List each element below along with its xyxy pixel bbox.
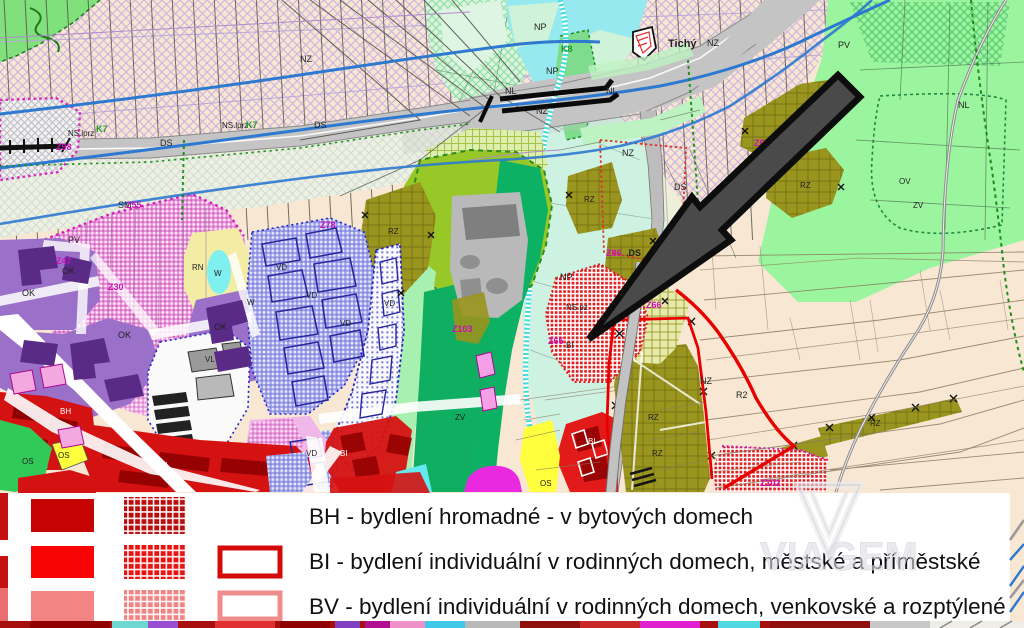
svg-text:DS: DS — [160, 138, 173, 148]
svg-text:RZ: RZ — [870, 419, 881, 428]
svg-text:NL: NL — [606, 86, 618, 96]
svg-text:VL: VL — [205, 355, 215, 364]
svg-text:OK: OK — [22, 288, 35, 298]
svg-text:ZV: ZV — [913, 201, 924, 210]
svg-text:BI: BI — [566, 341, 574, 350]
svg-text:W: W — [247, 298, 255, 307]
svg-text:NZ: NZ — [622, 148, 634, 158]
svg-text:R2: R2 — [736, 390, 748, 400]
svg-text:BI: BI — [588, 437, 596, 446]
svg-text:PV: PV — [68, 235, 80, 245]
svg-text:VD: VD — [276, 263, 287, 272]
svg-text:Z86: Z86 — [606, 248, 622, 258]
svg-text:VIAGEM: VIAGEM — [760, 535, 918, 579]
svg-text:Z65: Z65 — [548, 336, 564, 346]
svg-text:VD: VD — [306, 449, 317, 458]
svg-text:NP: NP — [534, 22, 547, 32]
svg-text:NS.lprz: NS.lprz — [68, 129, 94, 138]
svg-text:OS: OS — [22, 457, 34, 466]
svg-text:NS.pz: NS.pz — [566, 303, 588, 312]
svg-text:OK: OK — [118, 330, 131, 340]
svg-text:K7: K7 — [96, 124, 108, 134]
svg-text:NZ: NZ — [536, 106, 548, 116]
svg-text:BH: BH — [60, 407, 71, 416]
svg-text:BI: BI — [160, 461, 168, 470]
svg-text:RZ: RZ — [652, 449, 663, 458]
svg-text:NS.lprz: NS.lprz — [222, 121, 248, 130]
svg-text:NP: NP — [560, 272, 573, 282]
svg-text:Z98: Z98 — [56, 142, 72, 152]
svg-text:NL: NL — [958, 100, 970, 110]
svg-text:VD: VD — [306, 291, 317, 300]
svg-text:NZ: NZ — [300, 54, 312, 64]
svg-text:Z102: Z102 — [760, 478, 781, 488]
svg-text:DS: DS — [314, 120, 327, 130]
svg-text:PV: PV — [838, 40, 850, 50]
svg-text:OS: OS — [540, 479, 552, 488]
svg-text:.DS: .DS — [626, 248, 641, 258]
svg-text:Z103: Z103 — [452, 324, 473, 334]
svg-text:RN: RN — [192, 263, 204, 272]
svg-text:OK: OK — [214, 322, 227, 332]
svg-text:OK: OK — [62, 266, 75, 276]
svg-text:Z30: Z30 — [108, 282, 124, 292]
svg-text:VD: VD — [340, 319, 351, 328]
svg-text:NP: NP — [546, 66, 559, 76]
svg-text:NL: NL — [505, 86, 517, 96]
svg-text:RZ: RZ — [800, 181, 811, 190]
svg-text:W: W — [214, 269, 222, 278]
svg-text:NZ: NZ — [700, 376, 712, 386]
svg-text:OV: OV — [899, 177, 911, 186]
svg-text:Tichý: Tichý — [668, 38, 697, 50]
svg-text:BV - bydlení individuální v ro: BV - bydlení individuální v rodinných do… — [309, 594, 1006, 619]
svg-text:RZ: RZ — [388, 227, 399, 236]
svg-text:Z47: Z47 — [56, 256, 72, 266]
svg-text:Z78: Z78 — [320, 220, 336, 230]
svg-text:K8: K8 — [561, 44, 573, 54]
svg-text:VD: VD — [384, 299, 395, 308]
svg-text:Z55: Z55 — [126, 200, 142, 210]
svg-text:RZ: RZ — [584, 195, 595, 204]
svg-text:NZ: NZ — [707, 38, 719, 48]
svg-text:OS: OS — [58, 451, 70, 460]
svg-text:DS: DS — [674, 182, 687, 192]
svg-text:ZV: ZV — [455, 413, 466, 422]
svg-text:RZ: RZ — [648, 413, 659, 422]
svg-text:BH - bydlení hromadné - v byto: BH - bydlení hromadné - v bytových domec… — [309, 504, 753, 529]
svg-text:BI: BI — [340, 449, 348, 458]
svg-text:K7: K7 — [246, 120, 258, 130]
